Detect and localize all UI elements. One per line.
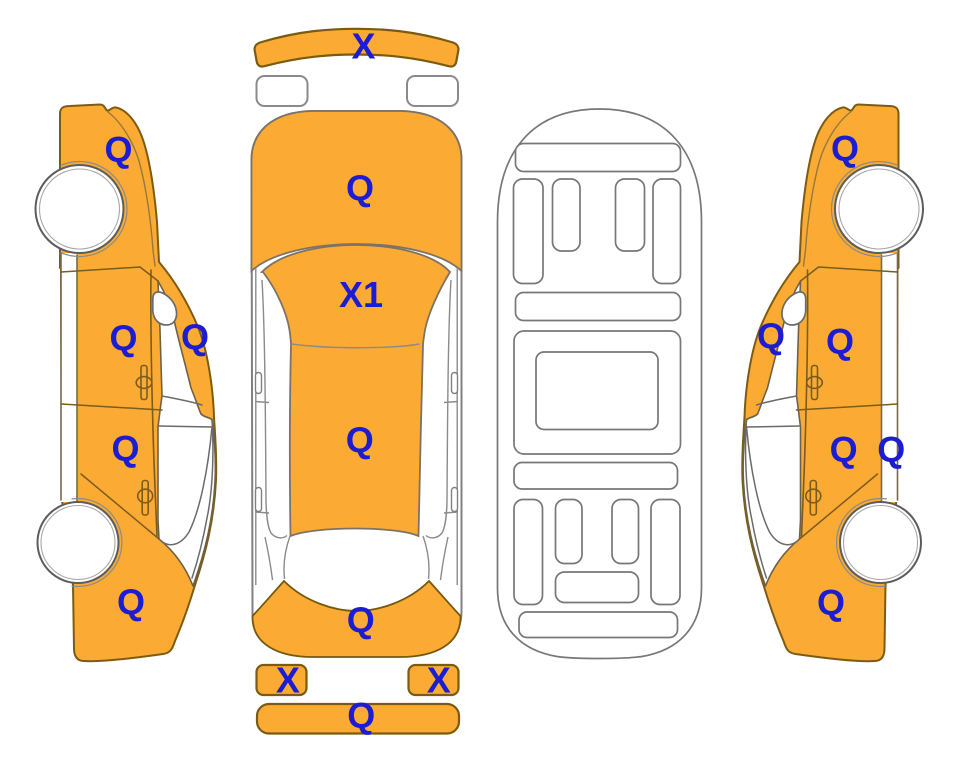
- svg-text:Q: Q: [346, 168, 374, 209]
- svg-text:Q: Q: [346, 420, 374, 461]
- svg-text:X: X: [351, 25, 375, 66]
- svg-text:Q: Q: [181, 317, 209, 358]
- svg-text:Q: Q: [817, 582, 845, 623]
- svg-text:Q: Q: [109, 318, 137, 359]
- svg-text:Q: Q: [831, 128, 859, 169]
- svg-text:Q: Q: [877, 429, 905, 470]
- svg-text:Q: Q: [104, 129, 132, 170]
- svg-text:X1: X1: [339, 274, 383, 315]
- svg-text:Q: Q: [830, 429, 858, 470]
- svg-text:Q: Q: [111, 428, 139, 469]
- svg-text:Q: Q: [117, 582, 145, 623]
- svg-text:X: X: [276, 660, 300, 701]
- svg-text:Q: Q: [347, 695, 375, 736]
- svg-text:Q: Q: [347, 599, 375, 640]
- svg-text:Q: Q: [757, 316, 785, 357]
- svg-text:Q: Q: [826, 321, 854, 362]
- svg-text:X: X: [427, 660, 451, 701]
